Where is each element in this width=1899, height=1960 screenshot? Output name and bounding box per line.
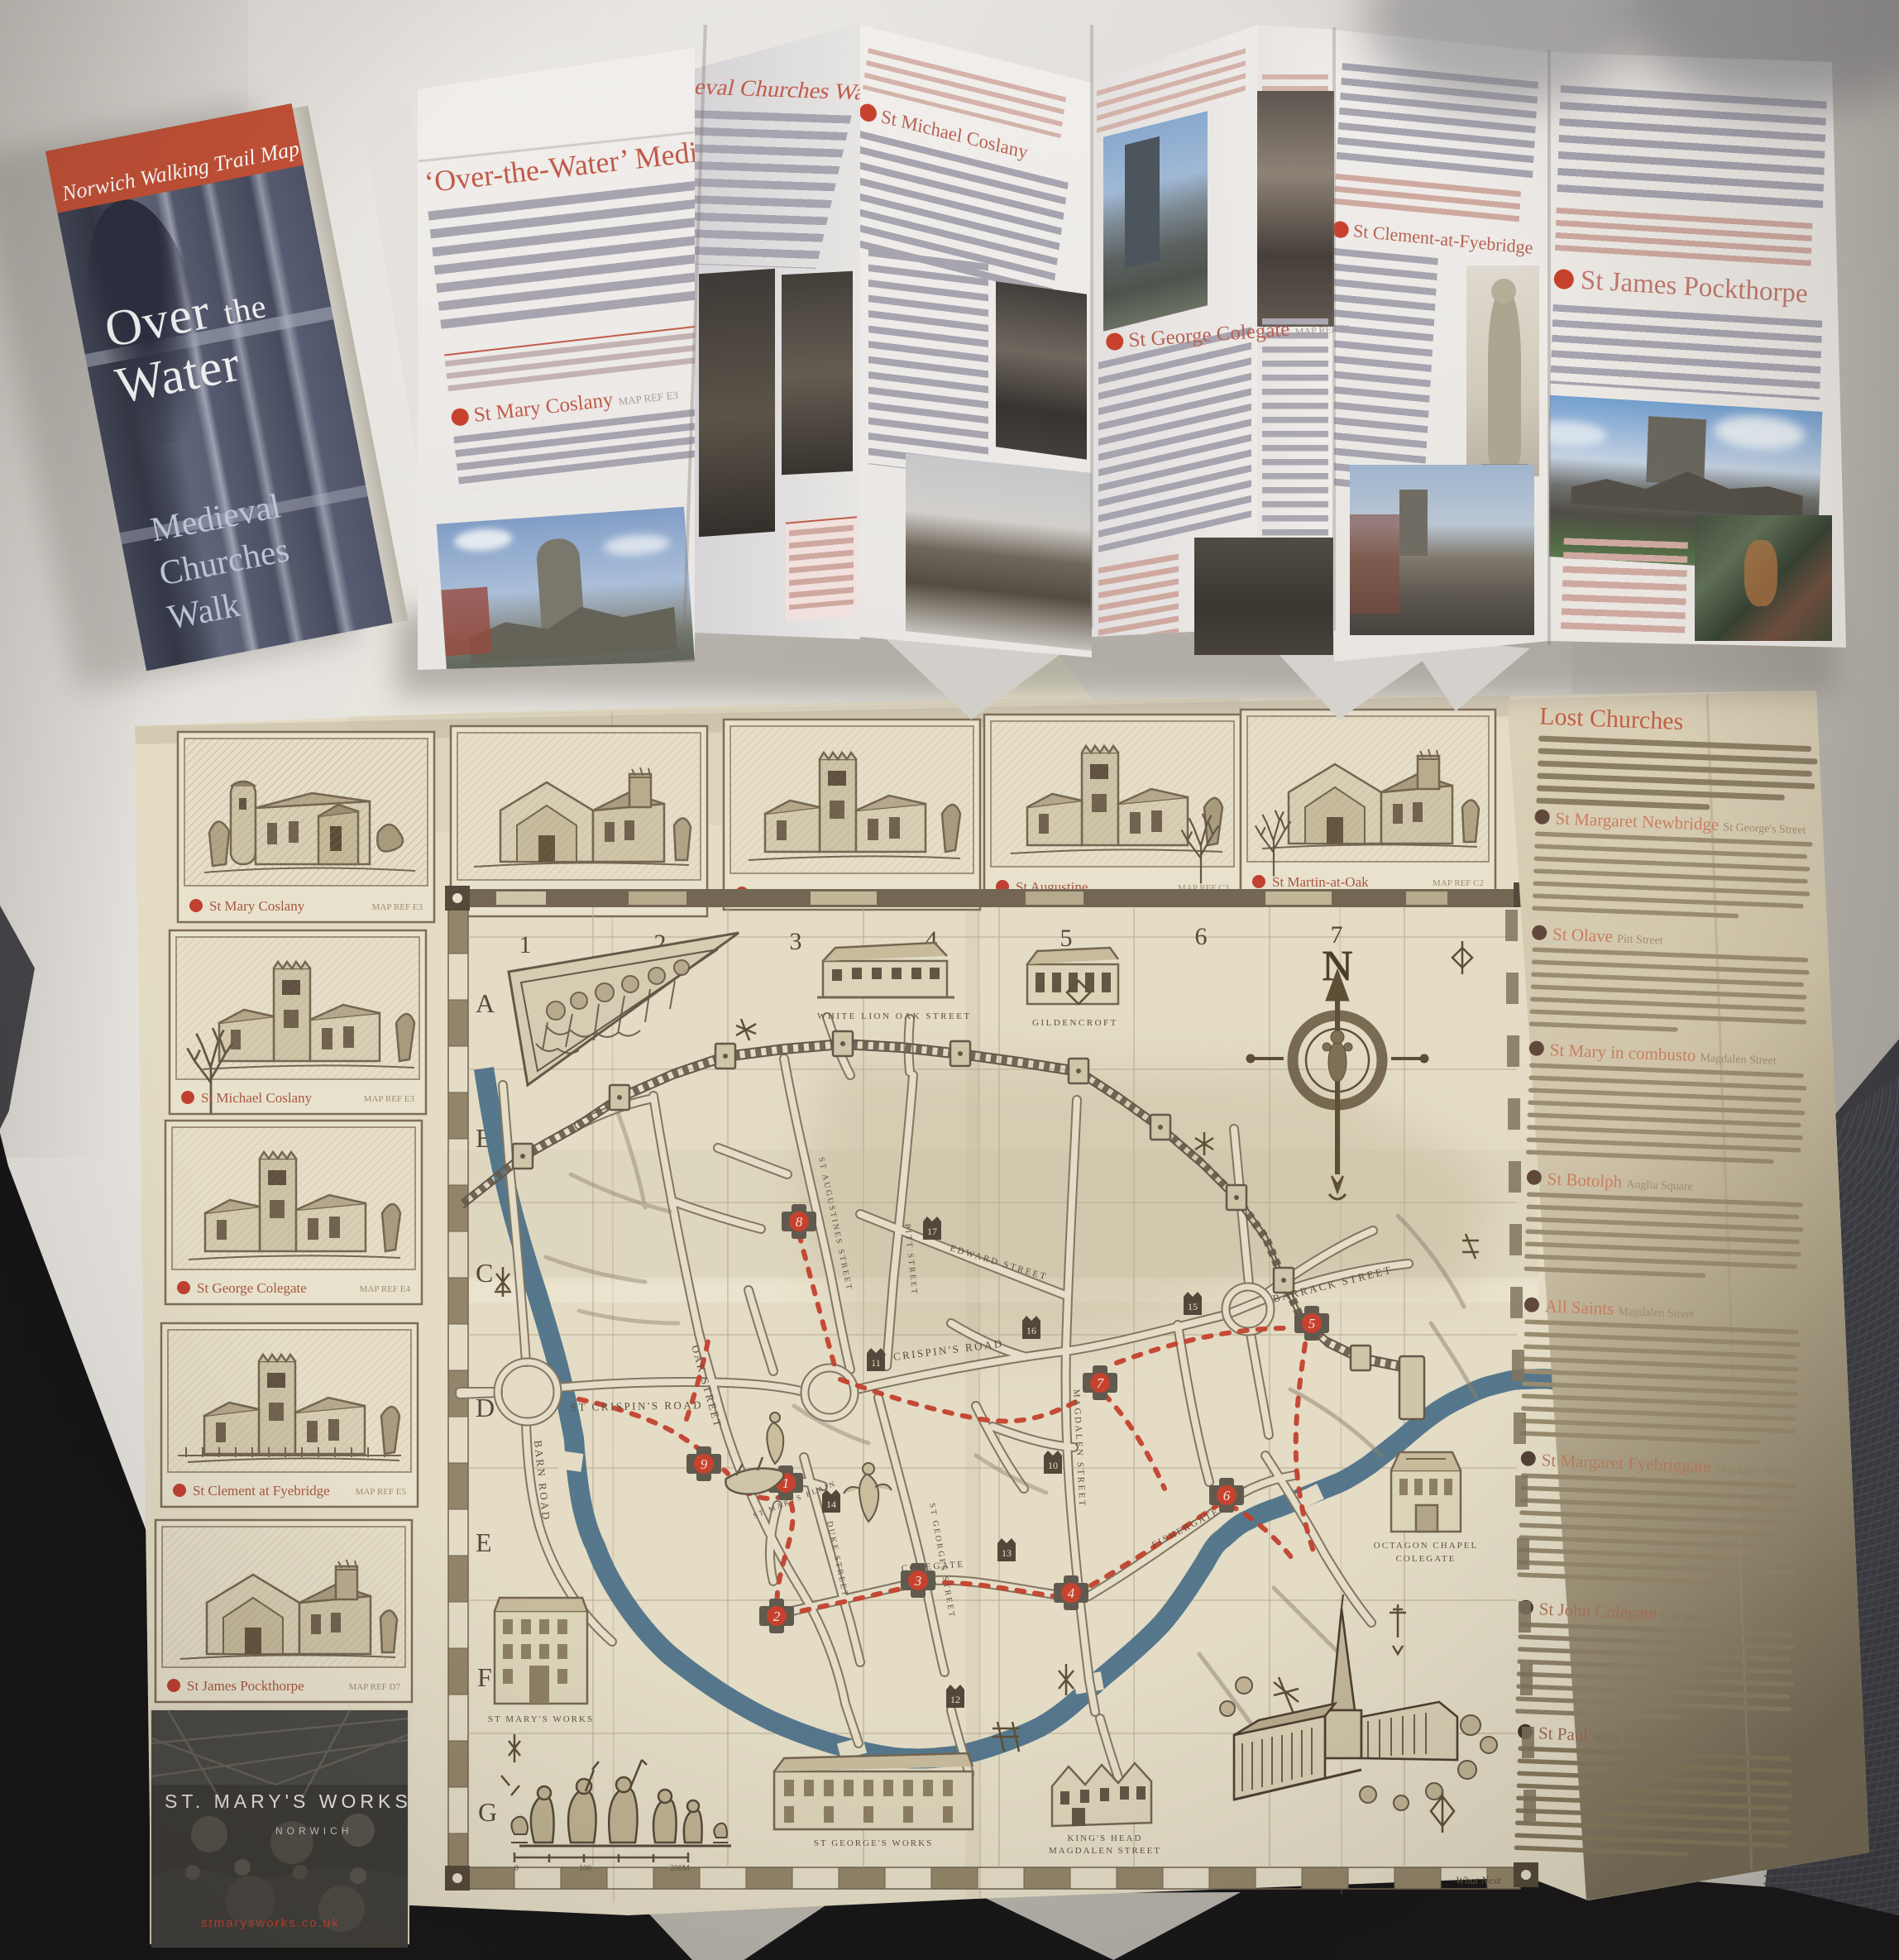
svg-text:17: 17 xyxy=(927,1226,937,1237)
svg-text:8: 8 xyxy=(796,1214,803,1230)
svg-text:3: 3 xyxy=(914,1573,922,1589)
svg-text:WHITE LION OAK STREET: WHITE LION OAK STREET xyxy=(817,1011,972,1021)
svg-text:G: G xyxy=(478,1797,497,1827)
svg-text:St Martin-at-Oak: St Martin-at-Oak xyxy=(1272,874,1369,890)
svg-text:F: F xyxy=(477,1662,492,1692)
svg-text:MAP REF C2: MAP REF C2 xyxy=(1433,878,1484,888)
svg-text:What Next: What Next xyxy=(1456,1874,1501,1886)
svg-text:ST GEORGE'S WORKS: ST GEORGE'S WORKS xyxy=(814,1838,933,1848)
svg-text:KING'S HEAD: KING'S HEAD xyxy=(1068,1833,1143,1843)
svg-text:COLEGATE: COLEGATE xyxy=(1396,1554,1457,1564)
svg-text:ST CRISPIN'S ROAD: ST CRISPIN'S ROAD xyxy=(571,1398,703,1413)
svg-text:13: 13 xyxy=(1002,1547,1012,1559)
svg-text:ST MARY'S WORKS: ST MARY'S WORKS xyxy=(488,1714,594,1724)
svg-text:NORWICH: NORWICH xyxy=(275,1825,352,1837)
svg-text:6: 6 xyxy=(1223,1488,1231,1503)
svg-text:A: A xyxy=(476,988,495,1018)
svg-text:MAP REF E5: MAP REF E5 xyxy=(356,1487,407,1497)
svg-text:100: 100 xyxy=(579,1864,591,1873)
svg-text:C: C xyxy=(476,1258,493,1288)
svg-text:OCTAGON CHAPEL: OCTAGON CHAPEL xyxy=(1374,1541,1478,1551)
svg-text:GILDENCROFT: GILDENCROFT xyxy=(1032,1018,1118,1028)
svg-text:0: 0 xyxy=(514,1864,519,1873)
svg-text:1: 1 xyxy=(519,931,532,958)
svg-text:16: 16 xyxy=(1026,1325,1036,1336)
svg-text:MAP REF E3: MAP REF E3 xyxy=(372,902,423,912)
svg-text:MAP REF E4: MAP REF E4 xyxy=(360,1284,411,1294)
svg-text:4: 4 xyxy=(1068,1585,1075,1601)
svg-text:MAP REF D7: MAP REF D7 xyxy=(348,1682,400,1692)
svg-text:MAGDALEN STREET: MAGDALEN STREET xyxy=(1049,1846,1161,1856)
svg-text:3: 3 xyxy=(790,928,802,955)
svg-text:St Clement at Fyebridge: St Clement at Fyebridge xyxy=(193,1483,330,1499)
svg-text:10: 10 xyxy=(1048,1460,1058,1471)
svg-text:St James Pockthorpe: St James Pockthorpe xyxy=(187,1678,304,1694)
svg-text:6: 6 xyxy=(1195,923,1208,950)
svg-text:MAP REF E3: MAP REF E3 xyxy=(364,1094,415,1104)
svg-text:St Mary Coslany: St Mary Coslany xyxy=(209,898,305,914)
svg-text:15: 15 xyxy=(1188,1301,1198,1312)
svg-text:St George Colegate: St George Colegate xyxy=(197,1280,307,1296)
svg-text:12: 12 xyxy=(950,1694,960,1705)
svg-text:9: 9 xyxy=(701,1456,708,1472)
svg-text:5: 5 xyxy=(1060,925,1073,952)
svg-text:5: 5 xyxy=(1308,1316,1316,1331)
svg-text:St Michael Coslany: St Michael Coslany xyxy=(201,1090,313,1106)
svg-text:ST. MARY'S WORKS: ST. MARY'S WORKS xyxy=(165,1790,412,1812)
svg-text:2: 2 xyxy=(773,1609,781,1624)
svg-text:200M: 200M xyxy=(670,1864,690,1873)
svg-text:stmarysworks.co.uk: stmarysworks.co.uk xyxy=(201,1916,340,1930)
svg-text:E: E xyxy=(476,1527,492,1557)
svg-text:14: 14 xyxy=(826,1499,836,1510)
